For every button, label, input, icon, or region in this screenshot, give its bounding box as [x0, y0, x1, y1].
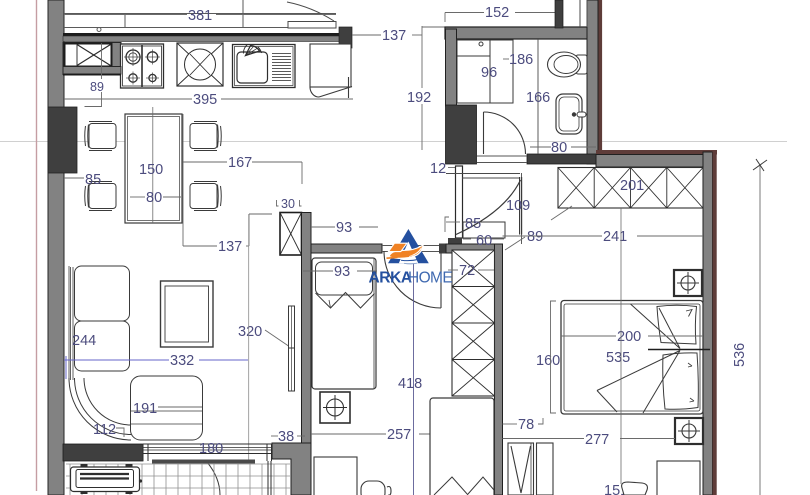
- svg-text:186: 186: [509, 52, 533, 68]
- svg-text:257: 257: [387, 427, 411, 443]
- svg-text:241: 241: [603, 229, 627, 245]
- svg-text:12: 12: [430, 161, 446, 177]
- svg-text:150: 150: [139, 162, 163, 178]
- svg-text:201: 201: [620, 178, 644, 194]
- svg-text:167: 167: [228, 155, 252, 171]
- svg-text:332: 332: [170, 353, 194, 369]
- svg-text:137: 137: [382, 28, 406, 44]
- svg-text:152: 152: [485, 5, 509, 21]
- svg-text:535: 535: [606, 350, 630, 366]
- svg-text:93: 93: [336, 220, 352, 236]
- svg-text:85: 85: [465, 216, 481, 232]
- svg-text:85: 85: [85, 172, 101, 188]
- svg-text:418: 418: [398, 376, 422, 392]
- svg-text:112: 112: [93, 422, 116, 438]
- svg-text:89: 89: [90, 80, 104, 94]
- svg-text:192: 192: [407, 90, 431, 106]
- svg-text:80: 80: [146, 190, 162, 206]
- svg-text:30: 30: [281, 197, 295, 211]
- svg-text:72: 72: [459, 263, 475, 279]
- svg-text:381: 381: [188, 8, 212, 24]
- svg-text:395: 395: [193, 92, 217, 108]
- svg-text:38: 38: [278, 429, 294, 445]
- svg-text:320: 320: [238, 324, 262, 340]
- svg-text:191: 191: [133, 401, 157, 417]
- svg-text:HOME: HOME: [408, 270, 452, 287]
- svg-text:78: 78: [518, 417, 534, 433]
- svg-text:80: 80: [551, 140, 567, 156]
- svg-text:89: 89: [527, 229, 543, 245]
- svg-text:180: 180: [199, 441, 223, 457]
- svg-text:60: 60: [476, 233, 492, 249]
- svg-text:93: 93: [334, 264, 350, 280]
- svg-text:96: 96: [481, 65, 497, 81]
- svg-text:277: 277: [585, 432, 609, 448]
- svg-text:166: 166: [526, 90, 550, 106]
- svg-text:160: 160: [536, 353, 560, 369]
- svg-text:536: 536: [732, 343, 748, 367]
- svg-text:109: 109: [506, 198, 530, 214]
- svg-text:137: 137: [218, 239, 242, 255]
- svg-text:ARKA: ARKA: [369, 270, 412, 287]
- svg-text:244: 244: [72, 333, 96, 349]
